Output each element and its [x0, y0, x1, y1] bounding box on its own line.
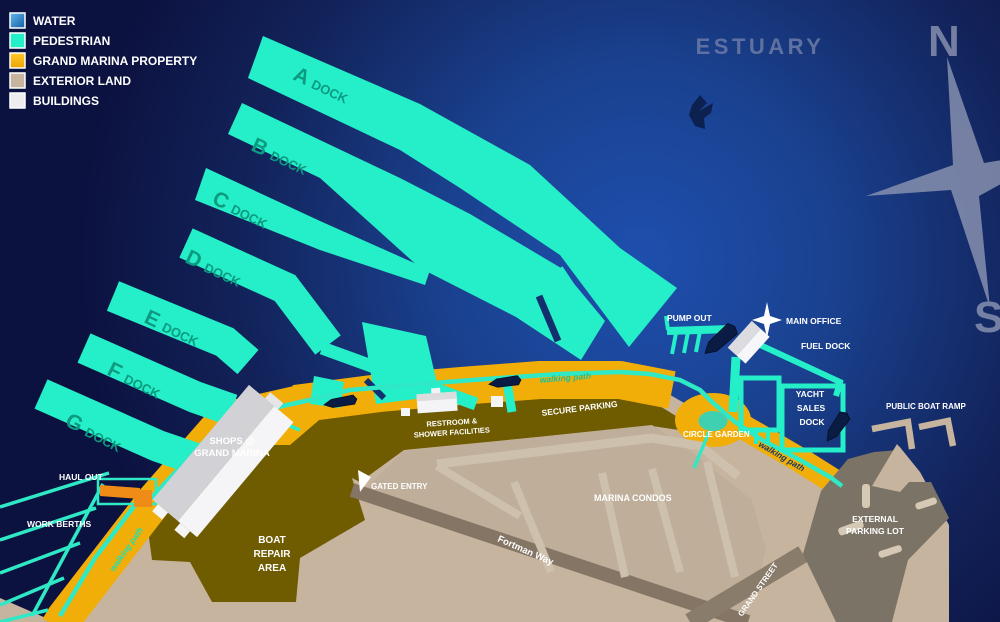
svg-text:AREA: AREA — [258, 563, 286, 574]
svg-text:DOCK: DOCK — [799, 417, 825, 427]
svg-text:MARINA CONDOS: MARINA CONDOS — [594, 493, 672, 503]
svg-text:GATED ENTRY: GATED ENTRY — [371, 482, 428, 491]
svg-text:YACHT: YACHT — [796, 389, 825, 399]
svg-text:SHOPS @: SHOPS @ — [209, 436, 254, 447]
svg-text:N: N — [928, 17, 960, 66]
svg-text:REPAIR: REPAIR — [253, 549, 291, 560]
svg-text:SALES: SALES — [797, 403, 826, 413]
svg-text:FUEL DOCK: FUEL DOCK — [801, 341, 851, 351]
svg-text:GRAND MARINA PROPERTY: GRAND MARINA PROPERTY — [33, 54, 197, 68]
svg-text:HAUL OUT: HAUL OUT — [59, 472, 104, 482]
svg-text:EXTERIOR LAND: EXTERIOR LAND — [33, 74, 131, 88]
svg-text:WORK BERTHS: WORK BERTHS — [27, 519, 92, 529]
svg-text:WATER: WATER — [33, 14, 76, 28]
svg-text:GRAND MARINA: GRAND MARINA — [194, 448, 270, 459]
svg-text:ESTUARY: ESTUARY — [696, 34, 825, 59]
svg-text:S: S — [974, 293, 1000, 342]
svg-text:PUMP OUT: PUMP OUT — [667, 313, 713, 323]
svg-text:PUBLIC BOAT RAMP: PUBLIC BOAT RAMP — [886, 402, 967, 411]
svg-text:MAIN OFFICE: MAIN OFFICE — [786, 316, 842, 326]
svg-text:BOAT: BOAT — [258, 535, 286, 546]
svg-text:PARKING LOT: PARKING LOT — [846, 526, 905, 536]
svg-text:BUILDINGS: BUILDINGS — [33, 94, 99, 108]
svg-text:CIRCLE GARDEN: CIRCLE GARDEN — [683, 430, 750, 439]
svg-text:EXTERNAL: EXTERNAL — [852, 514, 898, 524]
svg-text:PEDESTRIAN: PEDESTRIAN — [33, 34, 110, 48]
